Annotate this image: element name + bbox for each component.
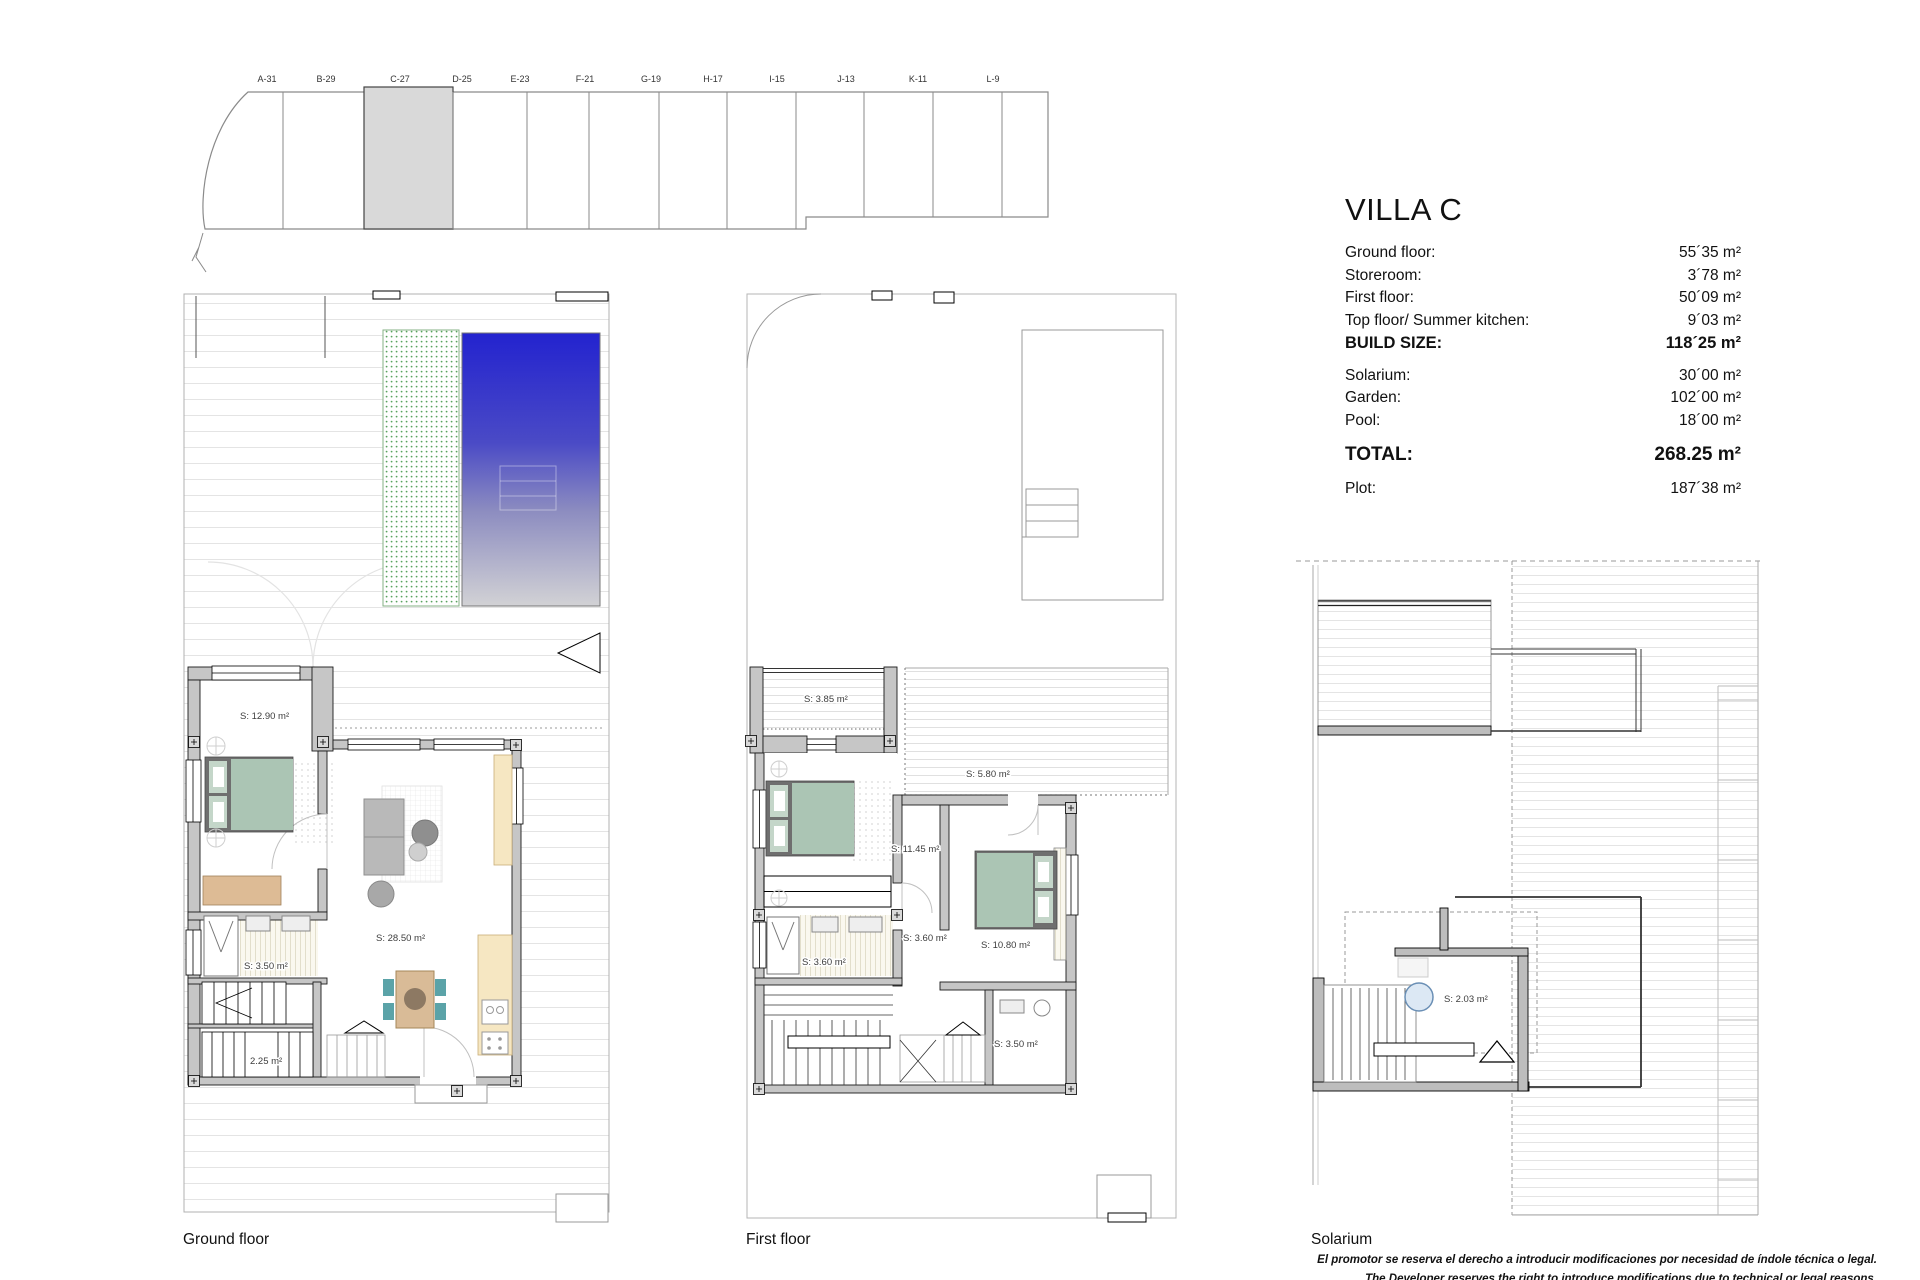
spec-row-build-size: BUILD SIZE:118´25 m² xyxy=(1345,332,1741,355)
coffee-table xyxy=(412,820,438,846)
stair-direction-arrow xyxy=(1480,1041,1514,1062)
room-area-label: S: 5.80 m² xyxy=(966,769,1010,780)
entry-porch xyxy=(415,1085,487,1103)
spec-value: 30´00 m² xyxy=(1679,365,1741,388)
room-area-label: S: 3.60 m² xyxy=(903,933,947,944)
room-area-label: S: 3.85 m² xyxy=(804,694,848,705)
plan-title-ground-floor: Ground floor xyxy=(183,1231,269,1249)
lot-label: B-29 xyxy=(316,74,335,84)
ground-floor-plan: S: 12.90 m² S: 3.50 m² 2.25 m² S: 28.50 … xyxy=(150,280,630,1230)
porch-step xyxy=(1108,1213,1146,1222)
spec-table: VILLA C Ground floor:55´35 m² Storeroom:… xyxy=(1345,192,1741,501)
room-area-label: S: 28.50 m² xyxy=(376,933,425,944)
room-area-label: S: 3.50 m² xyxy=(244,961,288,972)
upper-terrace-block xyxy=(1318,600,1491,735)
window xyxy=(753,790,766,848)
lot-label: J-13 xyxy=(837,74,855,84)
garden-bed xyxy=(383,330,459,606)
spec-value: 187´38 m² xyxy=(1670,478,1741,501)
bedroom-rug xyxy=(852,778,892,864)
spec-label: Top floor/ Summer kitchen: xyxy=(1345,310,1529,333)
spec-row: Plot:187´38 m² xyxy=(1345,478,1741,501)
lot-label: E-23 xyxy=(510,74,529,84)
basin xyxy=(849,917,882,932)
bed xyxy=(975,851,1057,929)
spec-label: Garden: xyxy=(1345,387,1401,410)
lot-label: K-11 xyxy=(909,74,927,84)
disclaimer: El promotor se reserva el derecho a intr… xyxy=(897,1251,1877,1280)
window xyxy=(186,760,201,822)
roof-deck xyxy=(1512,561,1758,1215)
disclaimer-line-en: The Developer reserves the right to intr… xyxy=(897,1270,1877,1280)
room-area-label: S: 10.80 m² xyxy=(981,940,1030,951)
storeroom-void xyxy=(1022,330,1163,600)
room-area-label: 2.25 m² xyxy=(250,1056,282,1067)
lot-label: H-17 xyxy=(703,74,723,84)
window xyxy=(753,922,766,968)
room-area-label: S: 11.45 m² xyxy=(891,844,939,855)
toilet xyxy=(246,916,270,931)
spec-value: 50´09 m² xyxy=(1679,287,1741,310)
porch xyxy=(1097,1175,1151,1218)
lot-label: L-9 xyxy=(986,74,999,84)
side-terrace xyxy=(905,668,1168,795)
disclaimer-line-es: El promotor se reserva el derecho a intr… xyxy=(897,1251,1877,1270)
villa-title: VILLA C xyxy=(1345,192,1741,228)
spec-row: Ground floor:55´35 m² xyxy=(1345,242,1741,265)
window xyxy=(348,739,420,750)
spec-row: Storeroom:3´78 m² xyxy=(1345,265,1741,288)
spec-row: Top floor/ Summer kitchen:9´03 m² xyxy=(1345,310,1741,333)
lot-label: A-31 xyxy=(257,74,276,84)
spec-label: Ground floor: xyxy=(1345,242,1435,265)
solarium-plan: S: 2.03 m² xyxy=(1280,540,1770,1240)
jacuzzi xyxy=(1405,983,1433,1011)
spec-label: Storeroom: xyxy=(1345,265,1422,288)
toilet xyxy=(812,917,838,932)
lot-highlighted xyxy=(364,87,453,229)
spec-value: 18´00 m² xyxy=(1679,410,1741,433)
window xyxy=(434,739,504,750)
room-area-label: S: 3.60 m² xyxy=(802,957,846,968)
lot-label: F-21 xyxy=(576,74,595,84)
shower xyxy=(204,916,238,976)
site-edge-hook xyxy=(192,233,206,272)
armchair xyxy=(368,881,394,907)
lot-label: G-19 xyxy=(641,74,661,84)
sink-icon xyxy=(482,1000,508,1024)
spec-label: BUILD SIZE: xyxy=(1345,332,1442,355)
stove-icon xyxy=(482,1032,508,1054)
spec-row: First floor:50´09 m² xyxy=(1345,287,1741,310)
lot-labels: A-31 B-29 C-27 D-25 E-23 F-21 G-19 H-17 … xyxy=(257,74,999,84)
window xyxy=(807,739,836,750)
spec-label: TOTAL: xyxy=(1345,442,1413,468)
spec-value: 9´03 m² xyxy=(1688,310,1741,333)
plot-porch xyxy=(556,1194,608,1222)
shower xyxy=(767,917,799,974)
site-outline xyxy=(203,92,1048,229)
basin xyxy=(282,916,310,931)
room-area-label: S: 3.50 m² xyxy=(994,1039,1038,1050)
spec-value: 118´25 m² xyxy=(1666,332,1741,355)
spec-row: Pool:18´00 m² xyxy=(1345,410,1741,433)
planter xyxy=(1398,958,1428,977)
room-area-label: S: 2.03 m² xyxy=(1444,994,1488,1005)
spec-label: Plot: xyxy=(1345,478,1376,501)
spec-row: Garden:102´00 m² xyxy=(1345,387,1741,410)
side-table xyxy=(409,843,427,861)
spec-label: Solarium: xyxy=(1345,365,1410,388)
lot-label: D-25 xyxy=(452,74,472,84)
first-floor-plan: S: 3.85 m² S: 5.80 m² S: 11.45 m² S: 3.6… xyxy=(730,280,1190,1230)
spec-value: 268.25 m² xyxy=(1654,442,1741,468)
lot-label: C-27 xyxy=(390,74,410,84)
spec-label: Pool: xyxy=(1345,410,1380,433)
window xyxy=(186,930,201,975)
dresser xyxy=(203,876,281,905)
spec-row-total: TOTAL:268.25 m² xyxy=(1345,442,1741,468)
spec-row: Solarium:30´00 m² xyxy=(1345,365,1741,388)
front-terrace xyxy=(750,667,897,753)
plan-title-first-floor: First floor xyxy=(746,1231,811,1249)
window xyxy=(212,666,300,680)
plan-title-solarium: Solarium xyxy=(1311,1231,1372,1249)
lot-label: I-15 xyxy=(769,74,785,84)
floorplan-sheet: A-31 B-29 C-27 D-25 E-23 F-21 G-19 H-17 … xyxy=(0,0,1920,1280)
room-area-label: S: 12.90 m² xyxy=(240,711,289,722)
spec-value: 102´00 m² xyxy=(1670,387,1741,410)
bed xyxy=(766,781,854,856)
spec-value: 55´35 m² xyxy=(1679,242,1741,265)
spec-value: 3´78 m² xyxy=(1688,265,1741,288)
bed xyxy=(205,757,293,832)
site-plan: A-31 B-29 C-27 D-25 E-23 F-21 G-19 H-17 … xyxy=(140,55,1100,295)
pool xyxy=(462,333,600,606)
bedroom-rug xyxy=(292,762,334,846)
spec-label: First floor: xyxy=(1345,287,1414,310)
